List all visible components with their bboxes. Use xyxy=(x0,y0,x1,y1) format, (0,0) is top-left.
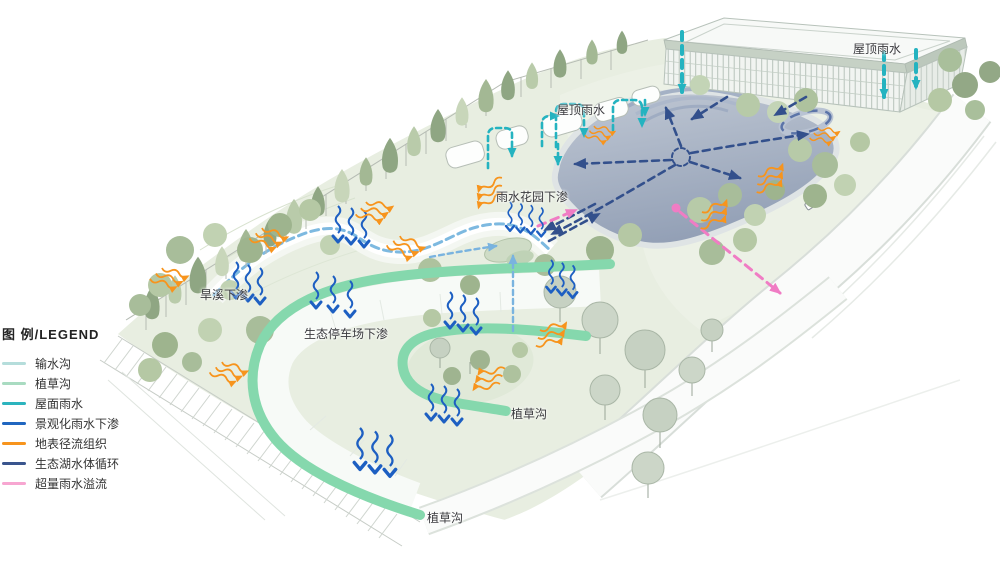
legend-swatch xyxy=(2,362,26,365)
label-roof-rain-mid: 屋顶雨水 xyxy=(557,101,605,118)
legend-item-grass-swale: 植草沟 xyxy=(2,373,172,393)
label-roof-rain-right: 屋顶雨水 xyxy=(853,40,901,57)
label-grass-swale-lower: 植草沟 xyxy=(427,509,463,526)
legend-swatch xyxy=(2,442,26,445)
stormwater-diagram: 屋顶雨水 屋顶雨水 雨水花园下渗 旱溪下渗 生态停车场下渗 植草沟 植草沟 图 … xyxy=(0,0,1000,562)
legend-item-overflow: 超量雨水溢流 xyxy=(2,473,172,493)
legend-swatch xyxy=(2,382,26,385)
legend: 图 例/LEGEND 输水沟 植草沟 屋面雨水 景观化雨水下渗 地表径流组织 生… xyxy=(2,324,172,493)
legend-item-surface-runoff: 地表径流组织 xyxy=(2,433,172,453)
legend-item-lake-circulation: 生态湖水体循环 xyxy=(2,453,172,473)
legend-swatch xyxy=(2,462,26,465)
legend-item-conveyance-ditch: 输水沟 xyxy=(2,353,172,373)
legend-item-roof-rainwater: 屋面雨水 xyxy=(2,393,172,413)
legend-title: 图 例/LEGEND xyxy=(2,324,172,343)
legend-swatch xyxy=(2,482,26,485)
legend-swatch xyxy=(2,422,26,425)
legend-swatch xyxy=(2,402,26,405)
legend-item-landscape-infiltration: 景观化雨水下渗 xyxy=(2,413,172,433)
label-rain-garden: 雨水花园下渗 xyxy=(496,188,568,205)
label-eco-parking: 生态停车场下渗 xyxy=(304,325,388,342)
label-dry-creek: 旱溪下渗 xyxy=(200,286,248,303)
label-grass-swale-upper: 植草沟 xyxy=(511,405,547,422)
